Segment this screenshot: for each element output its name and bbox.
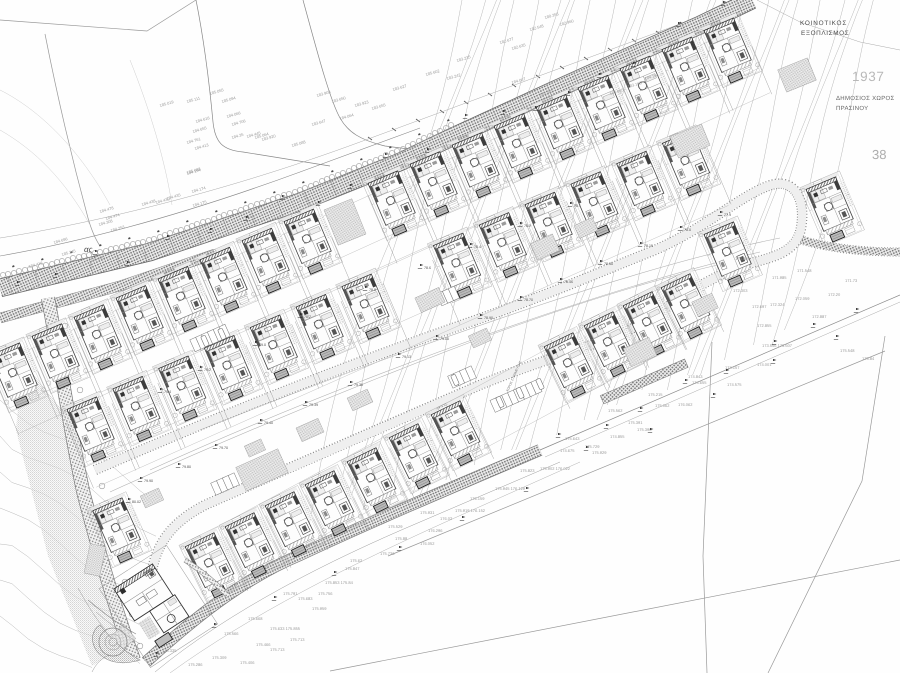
svg-text:174.575: 174.575	[727, 382, 742, 387]
svg-text:175.466: 175.466	[256, 642, 271, 647]
svg-text:78.15: 78.15	[644, 244, 653, 248]
svg-text:175.959: 175.959	[312, 606, 327, 611]
svg-text:77.9: 77.9	[724, 213, 731, 217]
svg-text:79.39: 79.39	[309, 403, 318, 407]
svg-text:172.059: 172.059	[795, 296, 810, 301]
svg-text:174.655: 174.655	[692, 380, 707, 385]
svg-text:176.296: 176.296	[428, 528, 443, 533]
svg-text:174.855: 174.855	[610, 434, 625, 439]
svg-text:172.697: 172.697	[752, 304, 767, 309]
svg-text:79.2: 79.2	[204, 368, 211, 372]
svg-text:175.683: 175.683	[298, 596, 313, 601]
svg-text:175.756: 175.756	[318, 591, 333, 596]
svg-text:175.215: 175.215	[648, 392, 663, 397]
svg-text:78.7: 78.7	[304, 315, 311, 319]
svg-text:78.90: 78.90	[484, 316, 493, 320]
svg-text:79.00: 79.00	[440, 337, 449, 341]
svg-text:172.855: 172.855	[757, 323, 772, 328]
svg-text:175.062: 175.062	[655, 403, 670, 408]
svg-text:175.736: 175.736	[380, 551, 395, 556]
svg-text:172.324: 172.324	[770, 302, 785, 307]
svg-text:ΚΟΙΝΟΤΙΚΟΣ: ΚΟΙΝΟΤΙΚΟΣ	[800, 20, 847, 27]
svg-text:79.0: 79.0	[259, 343, 266, 347]
svg-text:78.1: 78.1	[574, 204, 581, 208]
svg-text:78.2: 78.2	[524, 224, 531, 228]
svg-text:174.675: 174.675	[560, 448, 575, 453]
svg-text:175.406: 175.406	[240, 660, 255, 665]
svg-text:79.90: 79.90	[144, 479, 153, 483]
svg-text:79.30: 79.30	[354, 383, 363, 387]
svg-text:ΔΗΜΟΣΙΟΣ ΧΩΡΟΣ: ΔΗΜΟΣΙΟΣ ΧΩΡΟΣ	[836, 95, 895, 102]
svg-text:175.919 176.152: 175.919 176.152	[455, 508, 486, 513]
svg-text:ας: ας	[84, 245, 93, 254]
svg-text:175.548: 175.548	[840, 348, 855, 353]
svg-text:1937: 1937	[852, 69, 884, 84]
svg-text:ΠΡΑΣΙΝΟΥ: ΠΡΑΣΙΝΟΥ	[836, 105, 868, 112]
svg-text:78.6: 78.6	[424, 266, 431, 270]
svg-text:175.929: 175.929	[592, 450, 607, 455]
svg-text:175.902 176.022: 175.902 176.022	[540, 466, 571, 471]
svg-text:172.887: 172.887	[812, 314, 827, 319]
svg-text:176.02: 176.02	[440, 516, 453, 521]
svg-text:175.391: 175.391	[628, 420, 643, 425]
svg-text:171.548: 171.548	[797, 268, 812, 273]
svg-text:175.62: 175.62	[350, 558, 363, 563]
svg-text:80.02: 80.02	[132, 500, 141, 504]
svg-text:ΕΞΟΠΛΙΣΜΟΣ: ΕΞΟΠΛΙΣΜΟΣ	[801, 30, 849, 37]
svg-text:171.73: 171.73	[845, 278, 858, 283]
svg-text:173.965: 173.965	[735, 256, 750, 261]
svg-text:78.4: 78.4	[474, 245, 481, 249]
svg-text:175.945 176.129: 175.945 176.129	[495, 486, 526, 491]
svg-text:78.30: 78.30	[604, 262, 613, 266]
svg-text:78.8: 78.8	[369, 288, 376, 292]
svg-text:38: 38	[872, 147, 886, 162]
svg-text:175.88: 175.88	[395, 536, 408, 541]
svg-text:79.80: 79.80	[182, 465, 191, 469]
svg-text:175.529: 175.529	[388, 524, 403, 529]
svg-text:175.309: 175.309	[212, 655, 227, 660]
svg-text:176.062: 176.062	[678, 402, 693, 407]
svg-text:173.556 173.607: 173.556 173.607	[762, 343, 793, 348]
svg-text:79.13: 79.13	[402, 355, 411, 359]
svg-text:175.562: 175.562	[608, 408, 623, 413]
svg-text:174.157: 174.157	[725, 365, 740, 370]
svg-text:171.985: 171.985	[772, 275, 787, 280]
svg-text:176.159: 176.159	[470, 496, 485, 501]
svg-text:78.70: 78.70	[524, 298, 533, 302]
svg-text:175.84: 175.84	[862, 356, 875, 361]
svg-text:79.40: 79.40	[264, 421, 273, 425]
svg-text:172.303: 172.303	[733, 288, 748, 293]
svg-text:175.566: 175.566	[224, 631, 239, 636]
svg-text:175.713: 175.713	[290, 637, 305, 642]
svg-text:175.633 175.855: 175.633 175.855	[270, 626, 301, 631]
svg-text:175.335: 175.335	[162, 648, 177, 653]
svg-text:175.396: 175.396	[637, 427, 652, 432]
svg-text:172.20: 172.20	[828, 292, 841, 297]
svg-text:175.847: 175.847	[345, 566, 360, 571]
svg-text:175.791: 175.791	[283, 591, 298, 596]
svg-text:175.853 175.84: 175.853 175.84	[325, 580, 354, 585]
svg-text:175.286: 175.286	[188, 662, 203, 667]
svg-text:175.668: 175.668	[248, 616, 263, 621]
svg-text:78.46: 78.46	[564, 280, 573, 284]
svg-text:175.713: 175.713	[270, 647, 285, 652]
svg-text:79.70: 79.70	[219, 446, 228, 450]
svg-text:78.0: 78.0	[684, 228, 691, 232]
svg-text:174.001: 174.001	[757, 362, 772, 367]
svg-text:176.052: 176.052	[420, 541, 435, 546]
svg-text:174.843: 174.843	[688, 374, 703, 379]
svg-text:79.4: 79.4	[164, 390, 171, 394]
svg-text:175.931: 175.931	[420, 510, 435, 515]
svg-text:175.823: 175.823	[520, 468, 535, 473]
svg-text:175.643: 175.643	[565, 436, 580, 441]
